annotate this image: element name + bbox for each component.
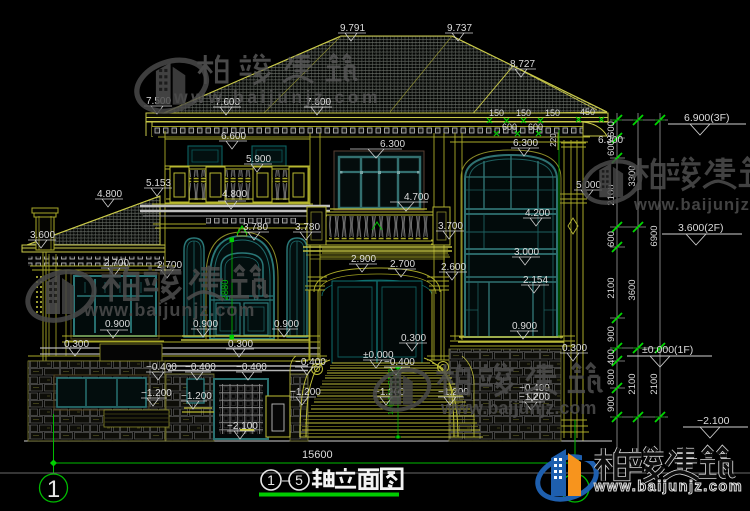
svg-text:−2.100: −2.100 xyxy=(697,415,730,427)
svg-text:−2.100: −2.100 xyxy=(227,421,258,432)
svg-text:600: 600 xyxy=(606,231,617,247)
svg-text:3.700: 3.700 xyxy=(438,221,463,232)
svg-text:5.000: 5.000 xyxy=(576,180,601,191)
svg-text:±0.000(1F): ±0.000(1F) xyxy=(642,344,693,356)
svg-text:600: 600 xyxy=(528,122,543,132)
svg-text:150: 150 xyxy=(545,108,560,118)
svg-text:−1.200: −1.200 xyxy=(141,388,172,399)
svg-text:6.300: 6.300 xyxy=(380,139,405,150)
svg-text:3.000: 3.000 xyxy=(514,247,539,258)
svg-text:6900: 6900 xyxy=(649,225,660,246)
svg-text:4.800: 4.800 xyxy=(97,189,122,200)
svg-text:2.700: 2.700 xyxy=(390,259,415,270)
svg-text:800: 800 xyxy=(606,369,617,385)
svg-text:−0.400: −0.400 xyxy=(384,357,415,368)
svg-text:−0.400: −0.400 xyxy=(185,362,216,373)
svg-text:6.300: 6.300 xyxy=(598,135,623,146)
svg-text:2.600: 2.600 xyxy=(441,262,466,273)
svg-text:450: 450 xyxy=(580,107,595,117)
svg-text:150: 150 xyxy=(489,108,504,118)
svg-text:3600: 3600 xyxy=(627,279,638,300)
svg-text:2100: 2100 xyxy=(649,373,660,394)
svg-text:150: 150 xyxy=(516,108,531,118)
svg-text:www.baijunjz.com: www.baijunjz.com xyxy=(633,196,750,214)
svg-text:−0.400: −0.400 xyxy=(236,362,267,373)
svg-text:3.600(2F): 3.600(2F) xyxy=(678,222,724,234)
svg-text:4.700: 4.700 xyxy=(404,192,429,203)
svg-text:900: 900 xyxy=(606,326,617,342)
svg-text:8.727: 8.727 xyxy=(510,59,535,70)
svg-text:−1.200: −1.200 xyxy=(181,391,212,402)
svg-text:1: 1 xyxy=(267,472,275,488)
svg-text:4.800: 4.800 xyxy=(222,189,247,200)
svg-text:2.154: 2.154 xyxy=(523,275,548,286)
svg-text:www.baijunjz.com: www.baijunjz.com xyxy=(173,87,381,107)
svg-text:9.737: 9.737 xyxy=(447,23,472,34)
svg-text:2.900: 2.900 xyxy=(351,254,376,265)
svg-text:0.300: 0.300 xyxy=(228,339,253,350)
svg-text:2100: 2100 xyxy=(627,373,638,394)
svg-text:15600: 15600 xyxy=(302,449,333,461)
svg-text:www.baijunjz.com: www.baijunjz.com xyxy=(440,398,596,418)
svg-text:900: 900 xyxy=(606,396,617,412)
svg-text:3.780: 3.780 xyxy=(243,222,268,233)
svg-text:5.900: 5.900 xyxy=(246,154,271,165)
svg-text:5: 5 xyxy=(295,472,303,488)
svg-text:−0.400: −0.400 xyxy=(295,357,326,368)
svg-text:0.300: 0.300 xyxy=(401,333,426,344)
svg-text:www.baijunjz.com: www.baijunjz.com xyxy=(83,300,255,320)
svg-text:400: 400 xyxy=(606,349,617,365)
svg-text:6.900(3F): 6.900(3F) xyxy=(684,112,730,124)
svg-text:6.300: 6.300 xyxy=(513,138,538,149)
svg-text:6.600: 6.600 xyxy=(221,131,246,142)
svg-text:2100: 2100 xyxy=(606,277,617,298)
svg-text:3.780: 3.780 xyxy=(295,222,320,233)
svg-text:9.791: 9.791 xyxy=(340,23,365,34)
svg-text:0.900: 0.900 xyxy=(274,319,299,330)
svg-text:1: 1 xyxy=(47,476,60,503)
svg-text:−0.400: −0.400 xyxy=(146,362,177,373)
svg-text:220: 220 xyxy=(549,133,558,147)
svg-text:0.300: 0.300 xyxy=(562,343,587,354)
svg-text:0.900: 0.900 xyxy=(512,321,537,332)
svg-text:0.900: 0.900 xyxy=(193,319,218,330)
svg-text:600: 600 xyxy=(502,122,517,132)
svg-text:5.153: 5.153 xyxy=(146,178,171,189)
svg-text:4.200: 4.200 xyxy=(525,208,550,219)
svg-text:0.900: 0.900 xyxy=(105,319,130,330)
svg-text:−1.200: −1.200 xyxy=(290,387,321,398)
svg-text:3.600: 3.600 xyxy=(30,230,55,241)
svg-text:www.baijunjz.com: www.baijunjz.com xyxy=(593,479,743,495)
